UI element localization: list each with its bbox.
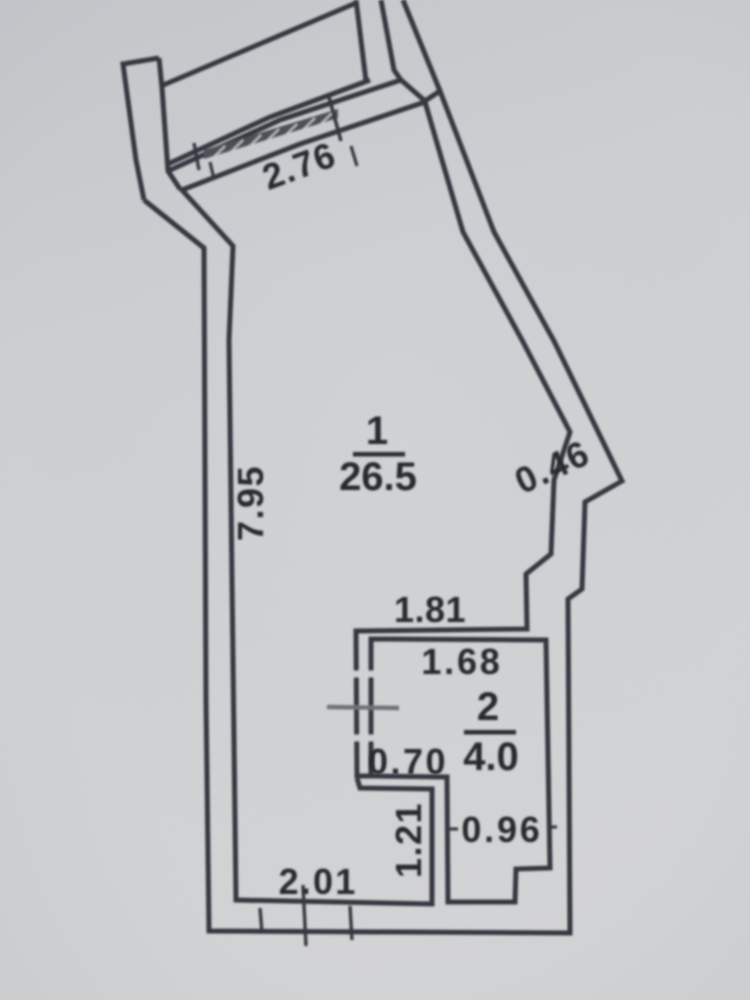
svg-text:2.01: 2.01: [279, 861, 358, 902]
svg-text:26.5: 26.5: [339, 455, 417, 499]
svg-text:0.70: 0.70: [368, 741, 448, 782]
svg-text:0.96: 0.96: [461, 809, 542, 850]
svg-text:4.0: 4.0: [463, 735, 519, 779]
svg-text:1: 1: [366, 409, 388, 453]
svg-text:1.81: 1.81: [394, 589, 466, 630]
svg-text:2: 2: [477, 685, 499, 729]
svg-text:1.68: 1.68: [421, 641, 502, 682]
svg-text:1.21: 1.21: [388, 802, 429, 878]
svg-text:7.95: 7.95: [230, 465, 271, 541]
